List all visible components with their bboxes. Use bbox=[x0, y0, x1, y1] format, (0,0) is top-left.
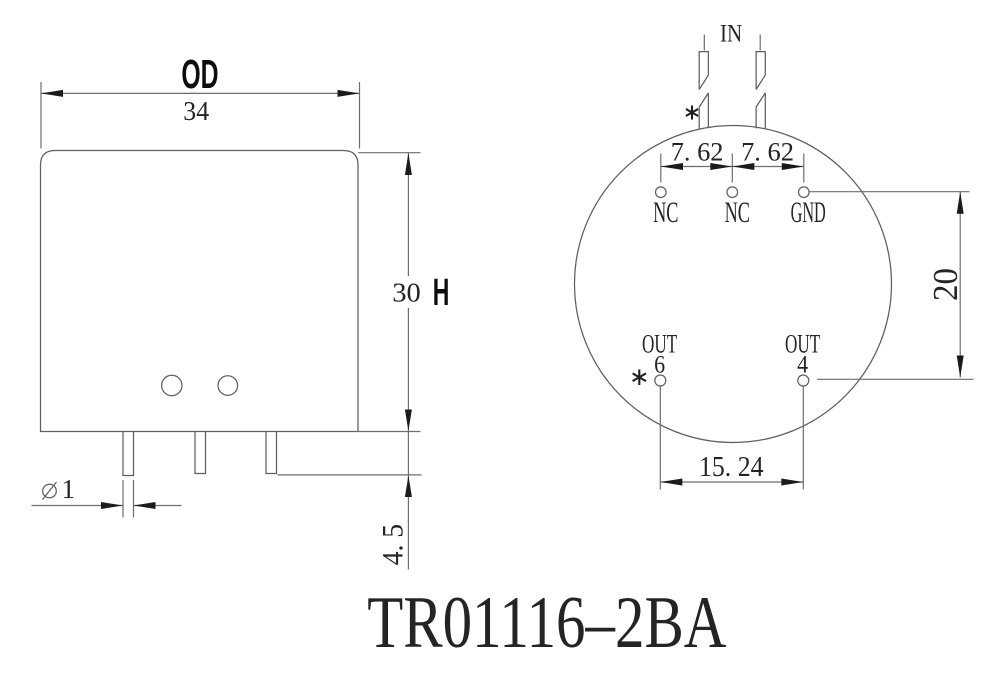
svg-text:7. 62: 7. 62 bbox=[741, 136, 794, 166]
svg-text:GND: GND bbox=[791, 196, 826, 229]
svg-text:IN: IN bbox=[720, 18, 742, 47]
svg-text:4: 4 bbox=[797, 351, 808, 378]
svg-text:15. 24: 15. 24 bbox=[699, 452, 764, 483]
svg-text:20: 20 bbox=[927, 268, 965, 301]
svg-text:30: 30 bbox=[392, 277, 421, 308]
svg-text:OD: OD bbox=[181, 51, 218, 97]
svg-text:H: H bbox=[433, 271, 450, 314]
svg-text:6: 6 bbox=[654, 351, 665, 378]
svg-text:1: 1 bbox=[62, 474, 76, 504]
svg-text:7. 62: 7. 62 bbox=[671, 136, 724, 166]
svg-text:NC: NC bbox=[725, 196, 750, 229]
svg-text:NC: NC bbox=[653, 196, 678, 229]
svg-text:34: 34 bbox=[183, 95, 209, 126]
svg-text:TR01116–2BA: TR01116–2BA bbox=[367, 582, 726, 664]
svg-text:4. 5: 4. 5 bbox=[377, 524, 410, 565]
